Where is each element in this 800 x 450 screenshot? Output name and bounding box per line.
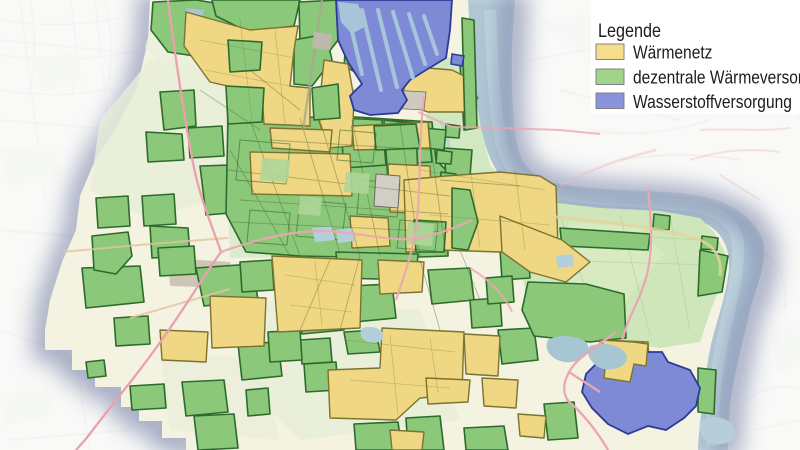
svg-text:Wärmenetz: Wärmenetz — [633, 42, 712, 63]
svg-text:Wasserstoffversorgung: Wasserstoffversorgung — [633, 92, 792, 113]
svg-text:dezentrale Wärmeversorgung: dezentrale Wärmeversorgung — [633, 67, 800, 88]
svg-text:Legende: Legende — [598, 20, 661, 42]
